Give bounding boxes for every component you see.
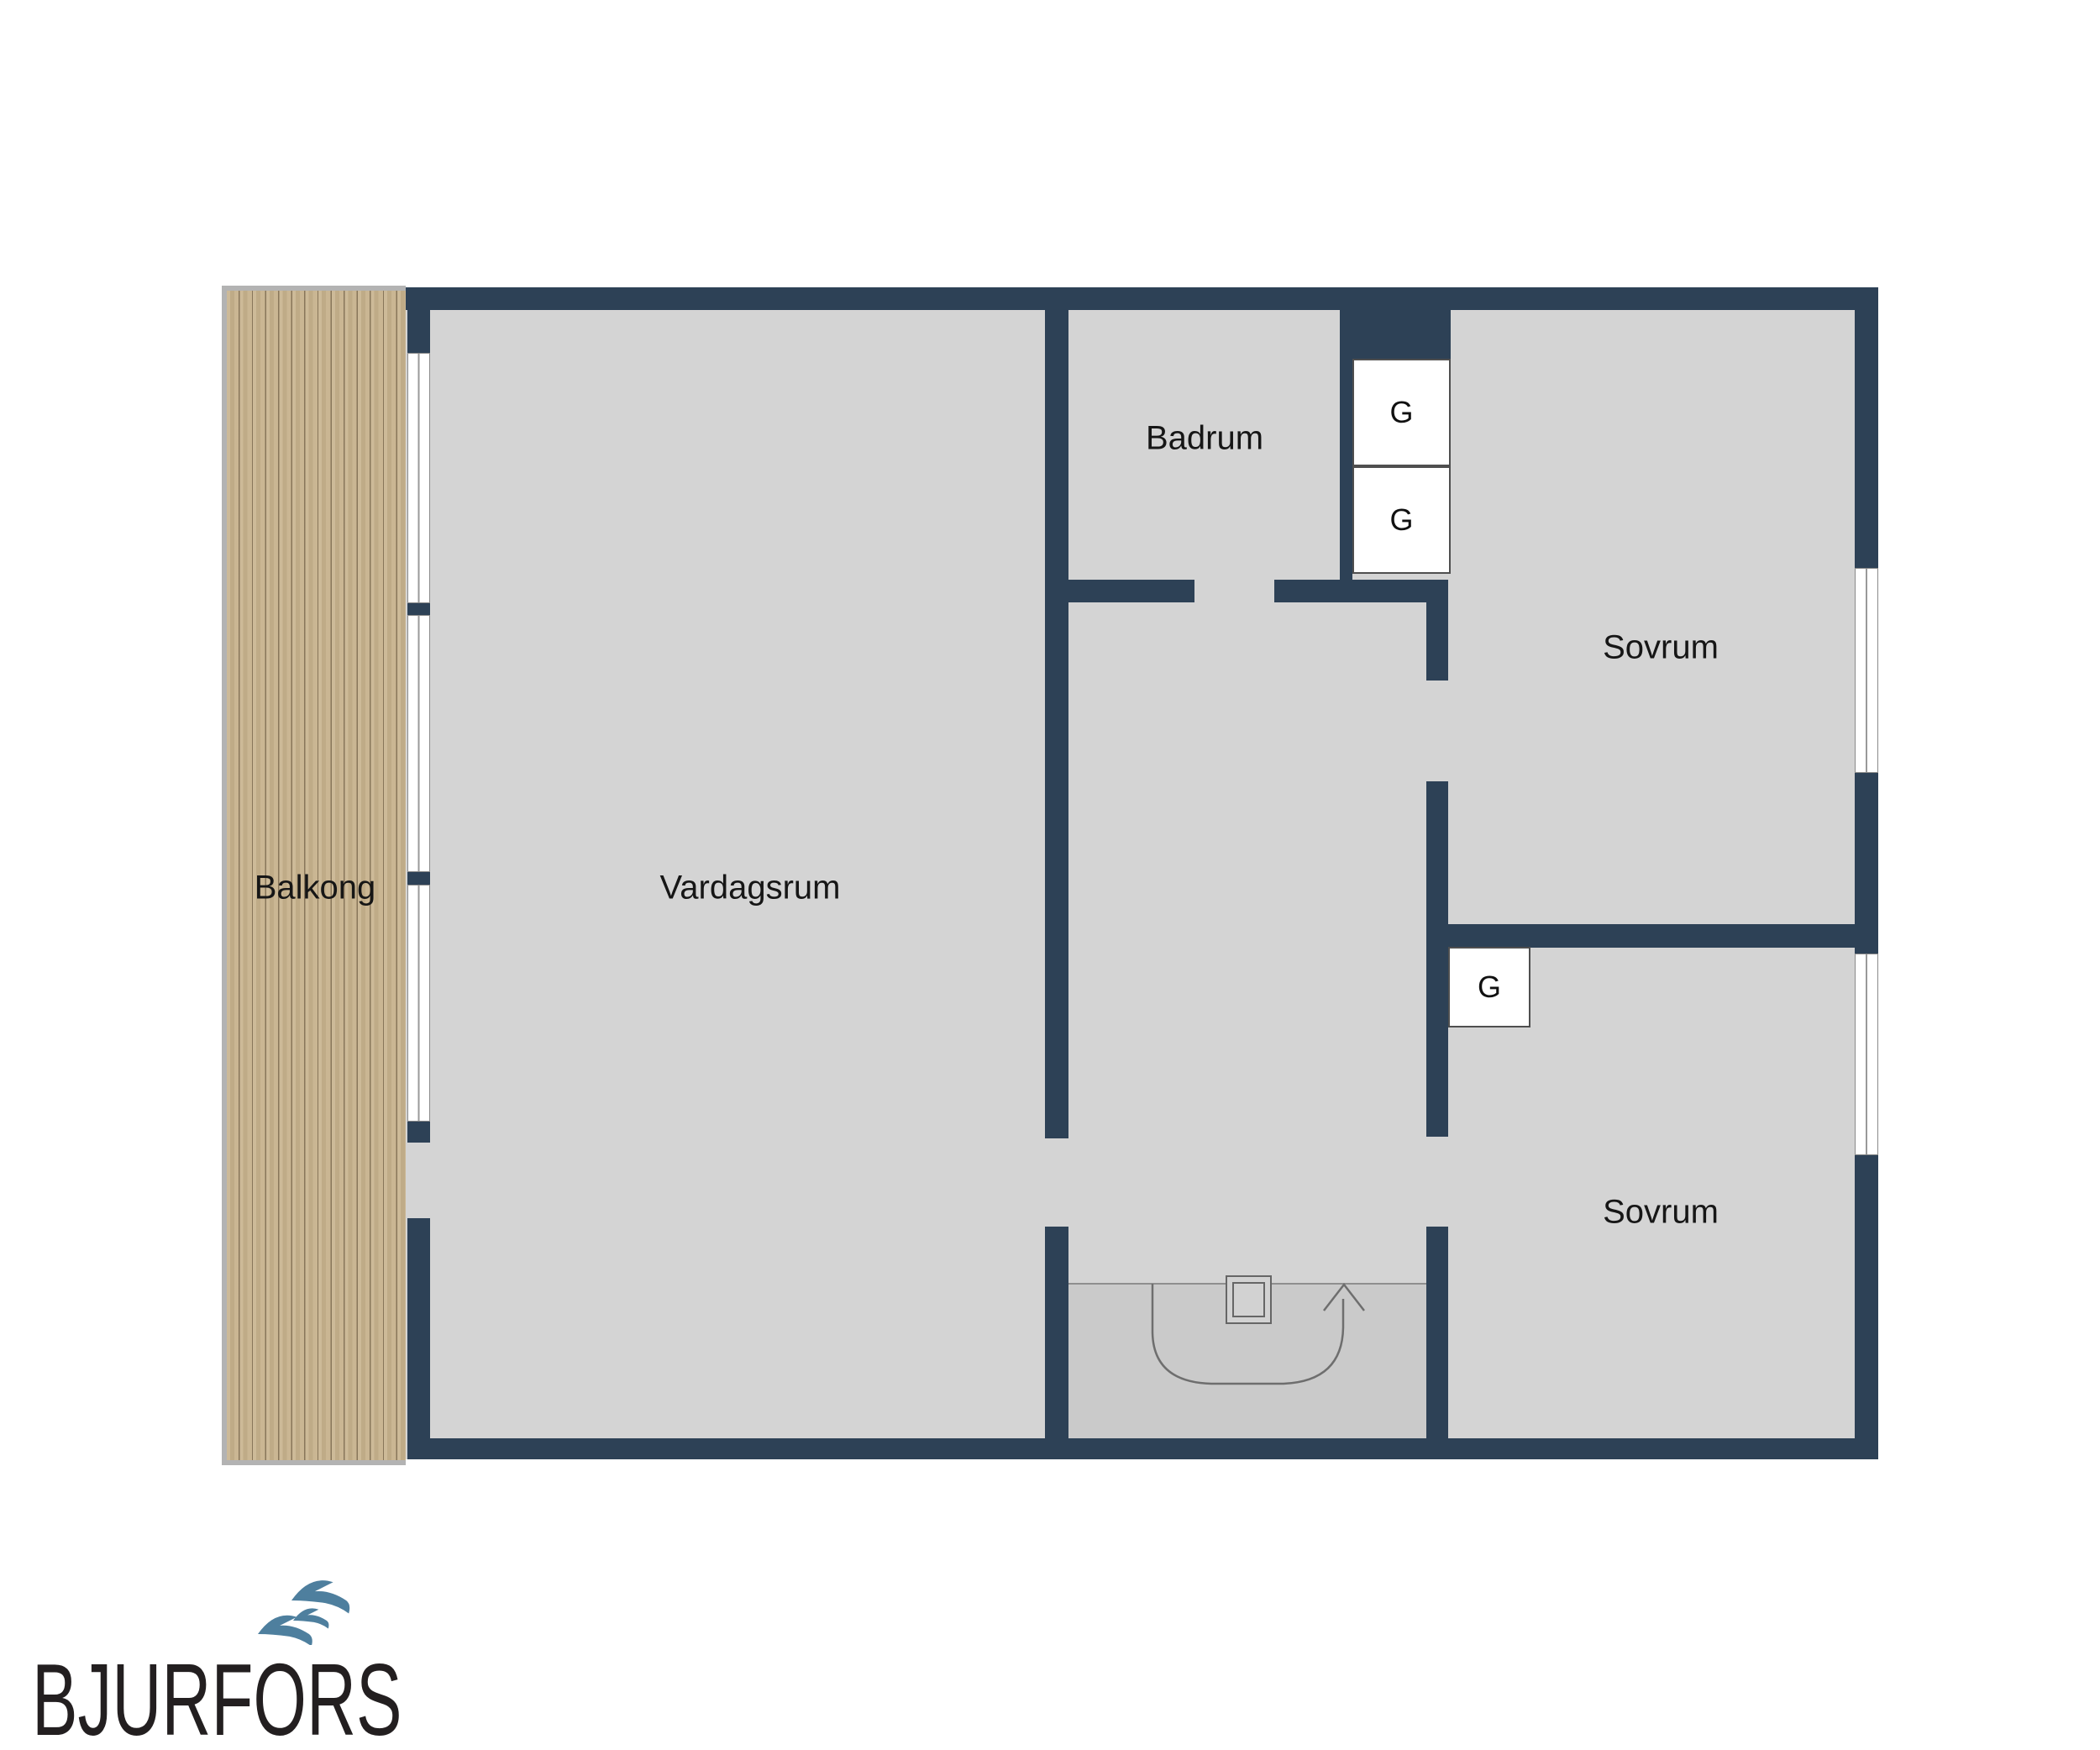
bird-3 (293, 1608, 328, 1628)
wall-hall-bedroom2-lower (1426, 1227, 1448, 1438)
wall-left-bottom (407, 1218, 430, 1459)
floor-plan-page: Balkong G G G Vardagsr (0, 0, 2100, 1750)
closet-g1-label: G (1389, 395, 1413, 430)
window-bedroom-2 (1855, 954, 1878, 1155)
wall-right-upper (1855, 287, 1878, 568)
window-bedroom-1 (1855, 568, 1878, 773)
wall-left-top-stub (407, 287, 430, 353)
wall-hall-bedroom-middle (1426, 781, 1448, 1137)
wall-left-stub-1 (407, 603, 430, 615)
logo-text: BJURFORS (32, 1648, 402, 1750)
bedroom-2-label: Sovrum (1603, 1194, 1719, 1232)
entry-door-symbol (1134, 1260, 1378, 1407)
balcony-label: Balkong (255, 870, 376, 907)
bathroom-label: Badrum (1146, 420, 1263, 458)
closet-g1: G (1352, 359, 1451, 466)
wall-hall-bedroom1-upper (1426, 602, 1448, 681)
wall-bottom (407, 1438, 1878, 1459)
closet-g3: G (1448, 947, 1530, 1027)
wall-right-middle (1855, 773, 1878, 954)
window-balcony-1 (407, 353, 430, 603)
wall-living-hall-upper (1045, 310, 1068, 1138)
closet-g3-label: G (1478, 970, 1501, 1005)
birds-icon (258, 1576, 350, 1645)
wall-above-closets (1340, 310, 1451, 359)
closet-g2-label: G (1389, 502, 1413, 538)
bedroom-1-label: Sovrum (1603, 629, 1719, 667)
wall-bedroom-divider (1448, 924, 1855, 948)
wall-left-stub-2 (407, 872, 430, 885)
wall-bathroom-closet-thin (1340, 359, 1352, 580)
closet-g2: G (1352, 466, 1451, 574)
window-balcony-3 (407, 885, 430, 1122)
wall-living-hall-lower (1045, 1227, 1068, 1438)
window-balcony-2 (407, 615, 430, 872)
bird-1 (291, 1580, 349, 1613)
wall-left-stub-3 (407, 1122, 430, 1143)
wall-bathroom-bottom-right (1274, 580, 1448, 602)
wall-right-lower (1855, 1155, 1878, 1459)
living-room-label: Vardagsrum (660, 870, 841, 907)
wall-bathroom-bottom-left (1068, 580, 1194, 602)
wall-top (406, 287, 1878, 310)
